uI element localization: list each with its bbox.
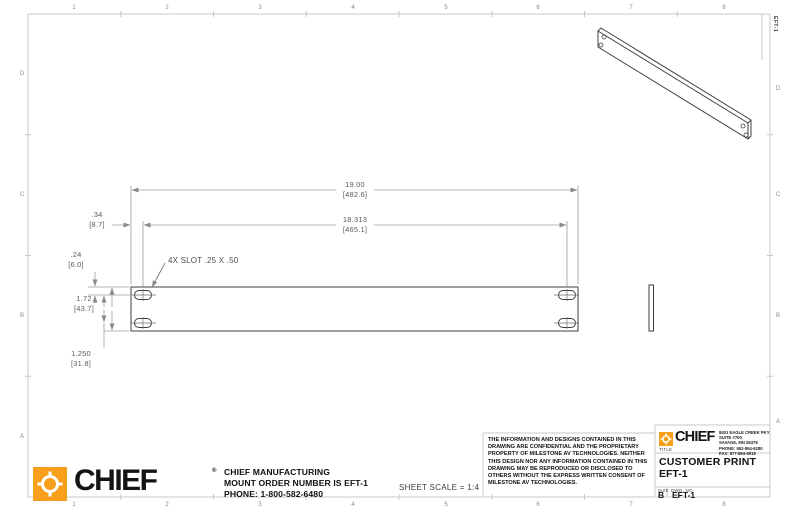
dim-top-offset-in: .24 — [56, 251, 96, 260]
slot-callout: 4X SLOT .25 X .50 — [168, 256, 238, 265]
footer-brand-wordmark: CHIEF — [74, 464, 157, 498]
dim-height-in: 1.72 — [64, 295, 104, 304]
dim-top-offset-mm: [6.0] — [56, 261, 96, 270]
margin-drawing-number: EFT-1 — [772, 16, 778, 32]
dim-edge-offset-in: .34 — [77, 211, 117, 220]
col-label-top: 2 — [157, 4, 177, 12]
col-label-top: 7 — [621, 4, 641, 12]
dim-overall-width-mm: [482.6] — [330, 191, 380, 200]
registered-trademark-icon: ® — [212, 468, 216, 474]
row-label-right: C — [768, 191, 788, 199]
footer-phone: PHONE: 1-800-582-6480 — [224, 489, 368, 500]
sheet-scale: SHEET SCALE = 1:4 — [399, 483, 479, 492]
chief-logo-icon — [33, 467, 67, 501]
dim-overall-width-in: 19.00 — [330, 181, 380, 190]
col-label-bottom: 1 — [64, 501, 84, 509]
isometric-view — [598, 28, 751, 139]
col-label-bottom: 6 — [528, 501, 548, 509]
col-label-bottom: 7 — [621, 501, 641, 509]
col-label-top: 8 — [714, 4, 734, 12]
dim-edge-offset-mm: [8.7] — [77, 221, 117, 230]
slot-holes — [135, 291, 576, 328]
row-label-right: D — [768, 85, 788, 93]
row-label-left: A — [12, 433, 32, 441]
dim-row-spacing-in: 1.250 — [61, 350, 101, 359]
col-label-bottom: 2 — [157, 501, 177, 509]
row-label-left: C — [12, 191, 32, 199]
col-label-bottom: 3 — [250, 501, 270, 509]
row-label-left: B — [12, 312, 32, 320]
confidentiality-notice: THE INFORMATION AND DESIGNS CONTAINED IN… — [488, 437, 648, 487]
dimension-lines — [88, 186, 578, 348]
col-label-top: 3 — [250, 4, 270, 12]
footer-company-lines: CHIEF MANUFACTURING MOUNT ORDER NUMBER I… — [224, 467, 368, 499]
chief-logo-icon-small — [659, 432, 673, 446]
dim-slot-span-mm: [465.1] — [330, 226, 380, 235]
col-label-bottom: 8 — [714, 501, 734, 509]
drawing-sheet: 1 2 3 4 5 6 7 8 1 2 3 4 5 6 7 8 D C B A … — [0, 0, 802, 519]
col-label-top: 1 — [64, 4, 84, 12]
row-label-right: A — [768, 418, 788, 426]
col-label-top: 5 — [436, 4, 456, 12]
col-label-top: 6 — [528, 4, 548, 12]
title-block-address: 8401 EAGLE CREEK PKY SUITE #700 SAVAGE, … — [719, 430, 770, 456]
front-view — [131, 287, 579, 331]
dwg-no-value: EFT-1 — [672, 490, 695, 500]
row-label-right: B — [768, 312, 788, 320]
dim-height-mm: [43.7] — [64, 305, 104, 314]
col-label-bottom: 5 — [436, 501, 456, 509]
drawing-title-line2: EFT-1 — [659, 468, 688, 480]
col-label-top: 4 — [343, 4, 363, 12]
dim-row-spacing-mm: [31.8] — [61, 360, 101, 369]
size-value: B — [658, 490, 664, 500]
title-label: TITLE — [659, 447, 672, 452]
footer-company-name: CHIEF MANUFACTURING — [224, 467, 368, 478]
drawing-title-line1: CUSTOMER PRINT — [659, 456, 756, 468]
col-label-bottom: 4 — [343, 501, 363, 509]
title-block-brand: CHIEF — [675, 429, 715, 445]
side-view — [649, 285, 654, 331]
row-label-left: D — [12, 70, 32, 78]
dim-slot-span-in: 18.313 — [330, 216, 380, 225]
footer-order-number: MOUNT ORDER NUMBER IS EFT-1 — [224, 478, 368, 489]
